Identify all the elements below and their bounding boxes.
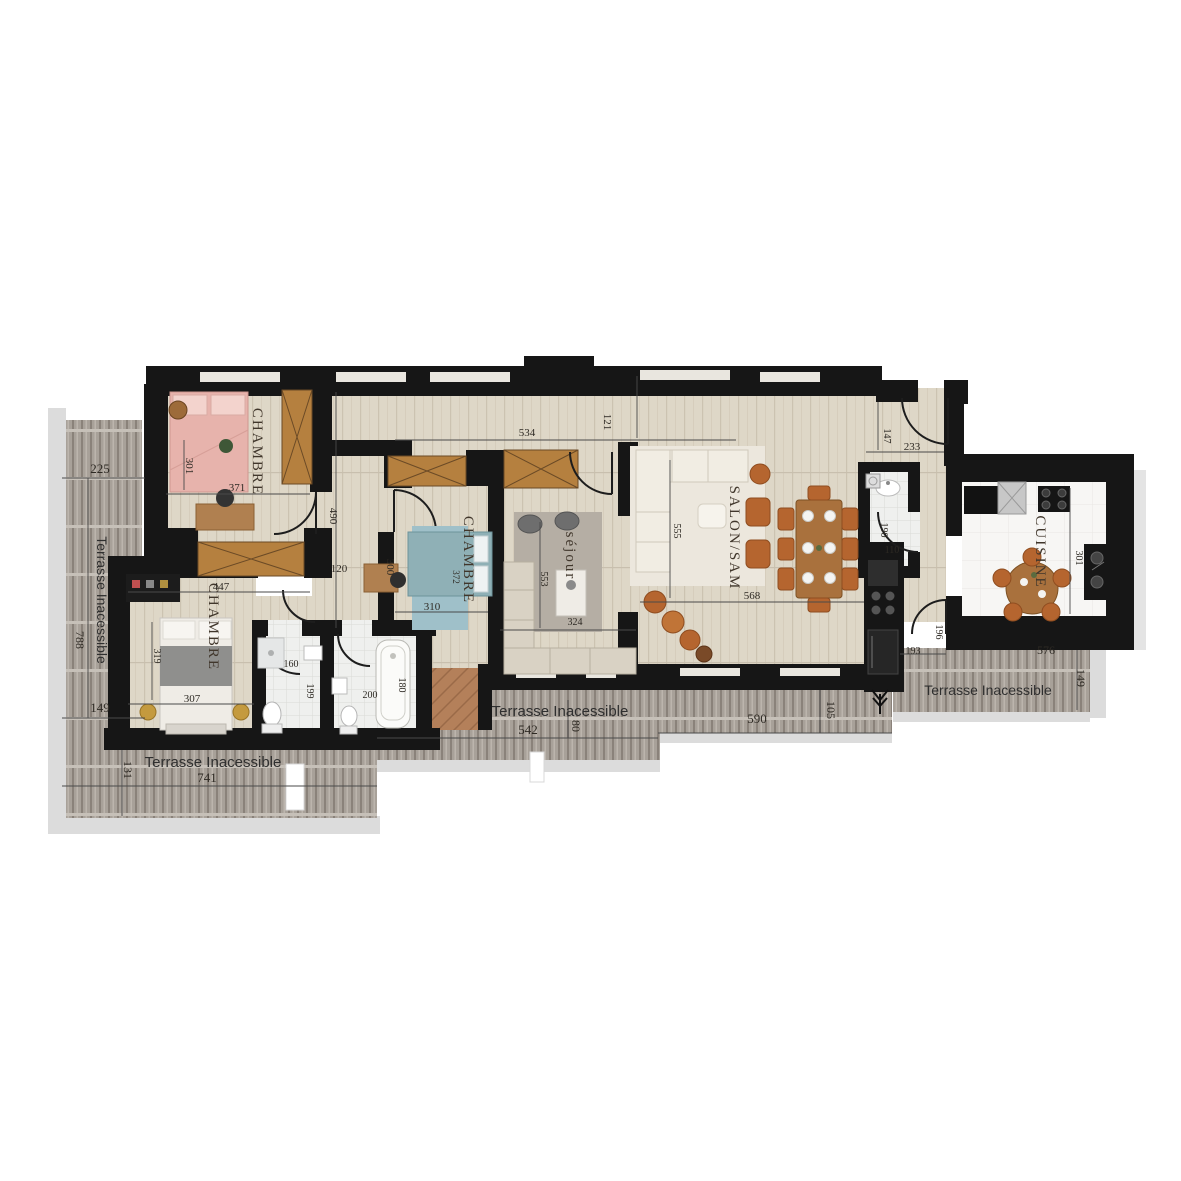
terrace-bottom-salon — [660, 683, 892, 733]
dim-590: 590 — [747, 711, 767, 726]
dim-301-cuisine: 301 — [1073, 551, 1084, 566]
dim-190: 190 — [878, 523, 889, 538]
room-label-sejour: séjour — [562, 532, 578, 581]
dim-225: 225 — [90, 461, 110, 476]
terrace-bottom-left-label: Terrasse Inacessible — [145, 754, 282, 771]
wc-shower — [258, 638, 284, 668]
room-label-cuisine: CUISINE — [1032, 515, 1048, 588]
dim-160: 160 — [284, 659, 299, 670]
terrace-right — [893, 648, 1090, 712]
dim-555: 555 — [671, 524, 682, 539]
room-label-chambre1: CHAMBRE — [249, 408, 265, 496]
dim-490: 490 — [327, 508, 339, 525]
wardrobe-sejour — [504, 450, 578, 488]
terrace-bottom-center-label: Terrasse Inacessible — [492, 703, 629, 720]
plant-icon — [169, 401, 187, 419]
kitchen-sink — [1084, 544, 1110, 600]
terrace-vent-center — [530, 752, 544, 782]
cooktop — [1038, 486, 1070, 512]
dim-196: 196 — [933, 625, 944, 640]
dim-121: 121 — [601, 414, 613, 431]
dim-542: 542 — [518, 722, 538, 737]
dim-307: 307 — [184, 693, 201, 705]
dim-199: 199 — [304, 684, 315, 699]
dim-372: 372 — [451, 570, 461, 584]
dim-200: 200 — [363, 690, 378, 701]
dim-371: 371 — [229, 482, 246, 494]
door-gap-bath — [342, 620, 372, 636]
bath-toilet — [340, 706, 357, 734]
dim-149-right: 149 — [1074, 669, 1088, 687]
dim-105: 105 — [824, 701, 838, 719]
kitchen-cabinet-x — [998, 482, 1026, 514]
dim-149-left: 149 — [90, 700, 110, 715]
bath-sink — [332, 678, 347, 694]
dim-300: 300 — [384, 559, 396, 576]
dim-576: 576 — [1037, 643, 1055, 657]
dim-110: 110 — [885, 545, 900, 556]
shelf-chambre3 — [126, 574, 180, 602]
dim-310: 310 — [424, 601, 441, 613]
terrace-vent-left — [286, 764, 304, 810]
dim-180: 180 — [396, 678, 407, 693]
dim-553: 553 — [538, 572, 549, 587]
dim-301-ch1: 301 — [183, 458, 195, 475]
room-label-chambre3: CHAMBRE — [205, 583, 221, 671]
pouf-gold-right — [233, 704, 249, 720]
dim-534: 534 — [519, 427, 536, 439]
dim-80: 80 — [569, 720, 583, 732]
room-label-salon: SALON/SAM — [726, 486, 742, 591]
floor-plan-canvas: Terrasse Inacessible 225 788 149 131 Ter… — [0, 0, 1181, 1181]
room-label-chambre2: CHAMBRE — [460, 516, 476, 604]
dim-120: 120 — [331, 563, 348, 575]
dim-233: 233 — [904, 441, 921, 453]
dim-741: 741 — [197, 770, 217, 785]
dim-193: 193 — [906, 646, 921, 657]
dim-788: 788 — [73, 631, 87, 649]
dim-131: 131 — [121, 761, 135, 779]
wardrobe-chambre3 — [198, 542, 304, 576]
wc-entree-washer — [866, 474, 880, 488]
dim-324: 324 — [568, 617, 583, 628]
dim-319: 319 — [151, 649, 162, 664]
kitchen-counter — [964, 486, 998, 514]
dim-447: 447 — [213, 581, 230, 593]
dim-568: 568 — [744, 590, 761, 602]
wardrobe-chambre2 — [388, 456, 466, 486]
wc-toilet — [262, 702, 282, 733]
wardrobe-chambre1 — [282, 390, 312, 484]
floor-plan-svg: Terrasse Inacessible 225 788 149 131 Ter… — [0, 0, 1181, 1181]
door-gap-wc — [268, 620, 302, 636]
dim-147: 147 — [881, 429, 892, 444]
wc-sink — [304, 646, 322, 660]
bed-chambre2 — [408, 532, 492, 596]
terrace-right-label: Terrasse Inacessible — [924, 682, 1052, 698]
terrace-left-label: Terrasse Inacessible — [94, 536, 110, 664]
